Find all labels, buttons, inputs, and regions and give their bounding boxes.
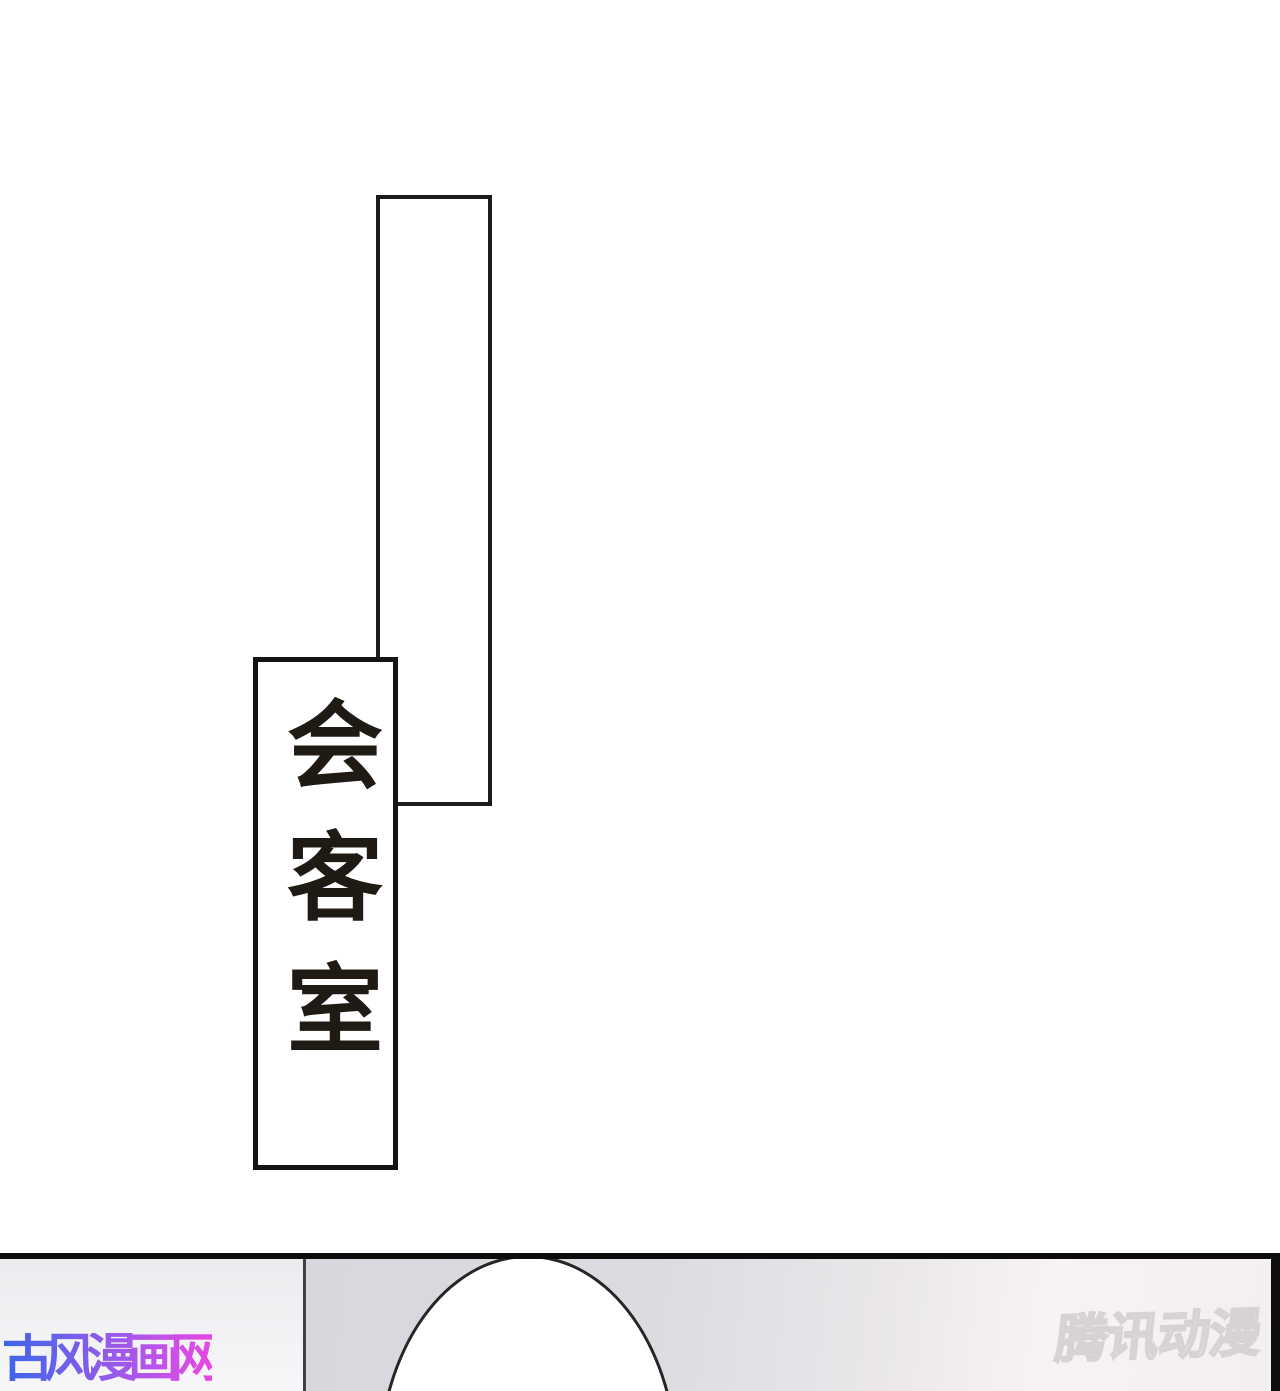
site-logo-text: 古风漫画网	[2, 1333, 212, 1385]
panel-top-border	[0, 1253, 1280, 1259]
tencent-comics-watermark: 腾讯动漫	[1053, 1307, 1263, 1366]
wall-corner-line	[303, 1257, 306, 1391]
panel-right-edge	[1271, 1253, 1280, 1391]
sign-text: 会客室	[278, 695, 374, 1165]
comic-page: 会客室 腾讯动漫 古风漫画网	[0, 0, 1280, 1391]
bottom-panel: 腾讯动漫 古风漫画网	[0, 1253, 1280, 1391]
sign-board: 会客室	[253, 657, 398, 1170]
